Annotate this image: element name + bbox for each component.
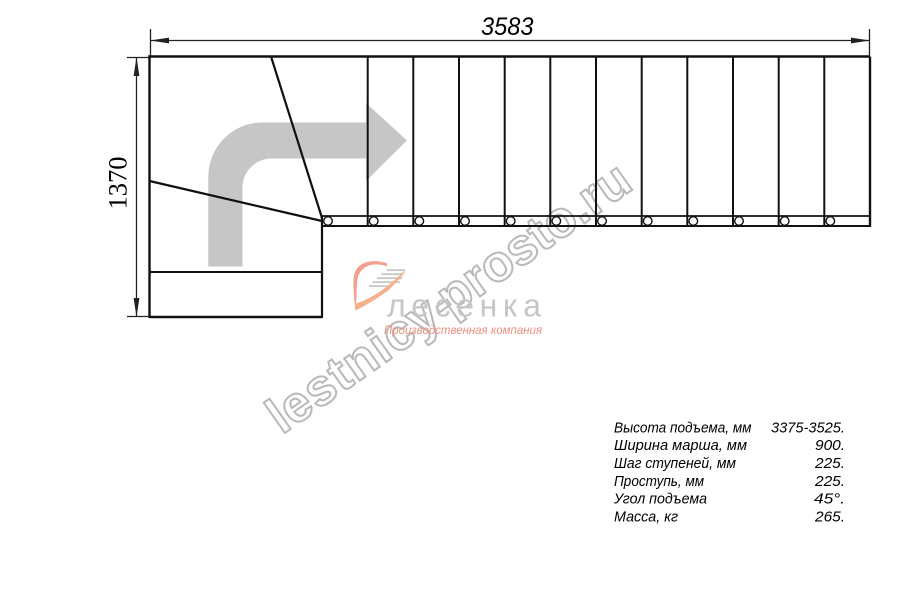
svg-text:265.: 265. [814,508,845,525]
svg-text:Угол подъема: Угол подъема [613,491,707,508]
svg-text:Производственная компания: Производственная компания [384,323,543,337]
svg-text:Масса, кг: Масса, кг [614,508,679,525]
svg-text:лесенка: лесенка [387,288,547,324]
svg-text:3583: 3583 [481,13,534,41]
svg-text:225.: 225. [814,455,845,472]
svg-text:1370: 1370 [104,157,133,210]
svg-text:Проступь, мм: Проступь, мм [614,473,704,490]
svg-text:45°.: 45°. [814,491,845,508]
svg-text:Высота подъема, мм: Высота подъема, мм [614,419,752,436]
svg-text:225.: 225. [814,473,845,490]
svg-text:3375-3525.: 3375-3525. [771,419,845,436]
svg-text:900.: 900. [815,437,845,454]
svg-text:Ширина марша, мм: Ширина марша, мм [614,437,747,454]
svg-text:Шаг ступеней, мм: Шаг ступеней, мм [614,455,736,472]
